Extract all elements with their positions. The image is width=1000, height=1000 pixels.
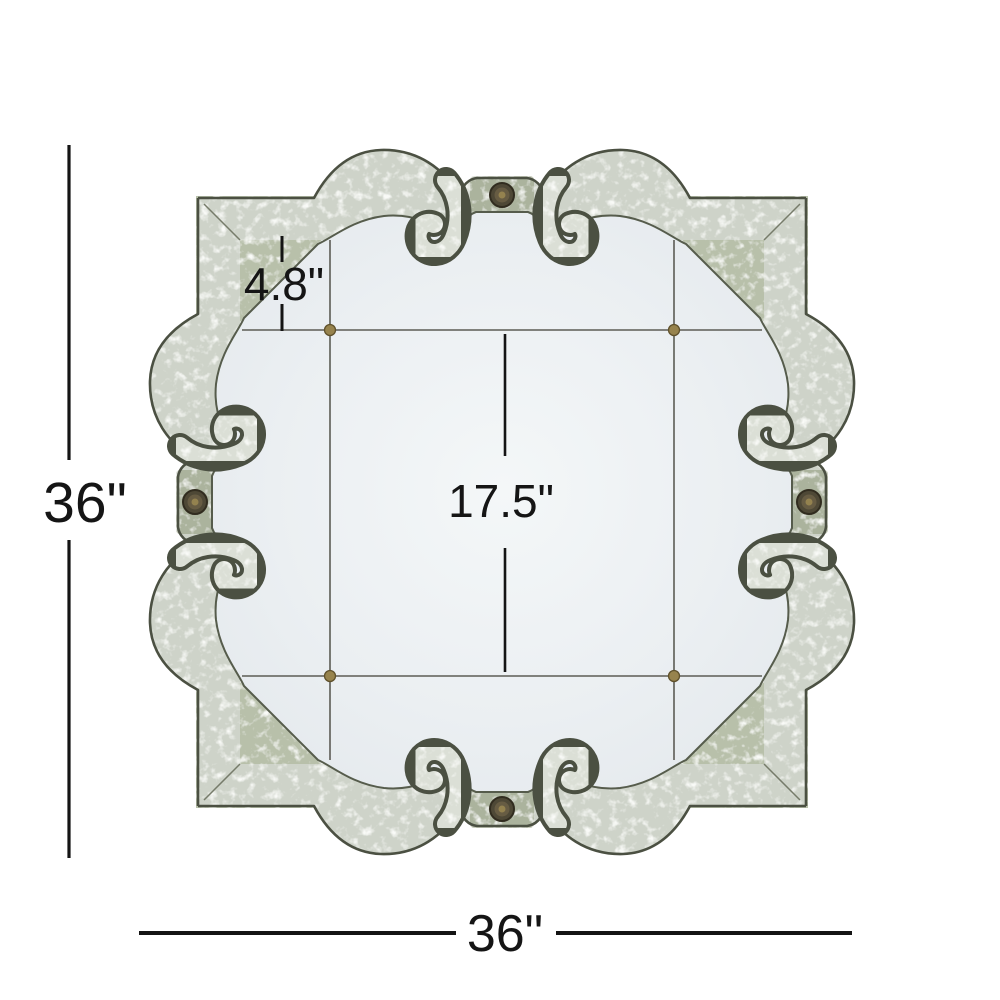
medallion-left (183, 490, 207, 514)
medallion-right (797, 490, 821, 514)
product-dimension-diagram: 36" 36" 17.5" 4.8" (0, 0, 1000, 1000)
brass-pin-bottom-left (325, 671, 336, 682)
dimension-label-border-panel: 4.8" (244, 258, 324, 310)
dimension-label-height: 36" (43, 471, 127, 535)
dimension-label-center-panel: 17.5" (448, 475, 554, 527)
mirror-dimension-drawing: 36" 36" 17.5" 4.8" (0, 0, 1000, 1000)
dimension-height: 36" (43, 145, 127, 858)
brass-pin-top-right (669, 325, 680, 336)
dimension-label-width: 36" (467, 905, 543, 963)
brass-pin-top-left (325, 325, 336, 336)
medallion-bottom (490, 797, 514, 821)
brass-pin-bottom-right (669, 671, 680, 682)
medallion-top (490, 183, 514, 207)
dimension-width: 36" (139, 905, 852, 963)
